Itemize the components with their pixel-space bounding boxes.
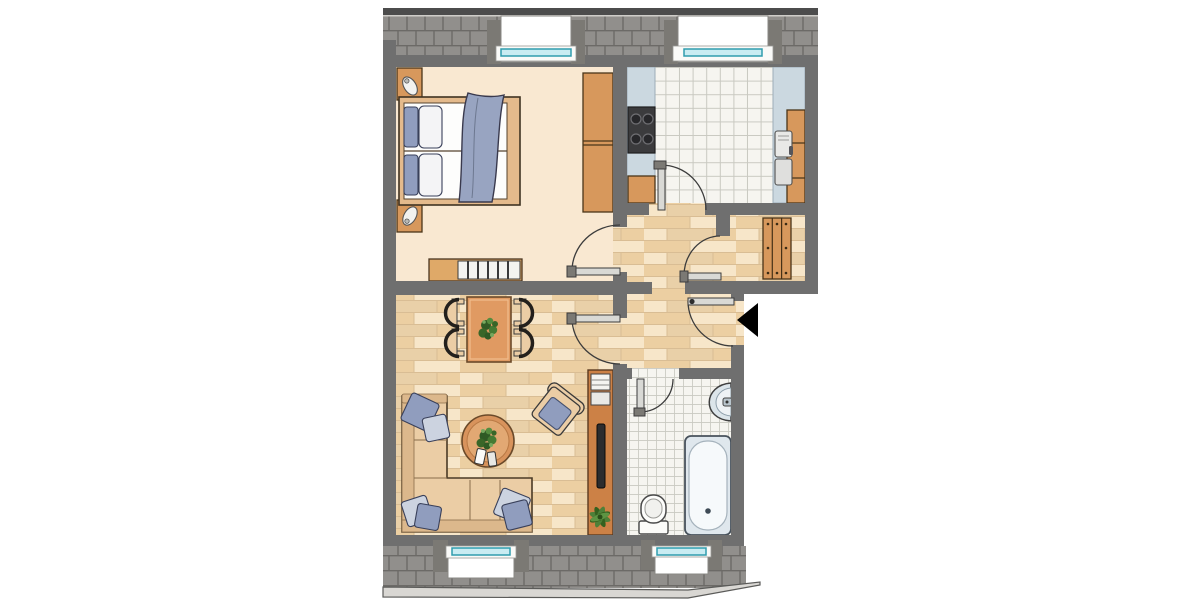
floor-plan	[0, 0, 1200, 600]
dresser-radiator	[429, 259, 522, 281]
window-glass	[684, 49, 762, 56]
sofa-pillow	[414, 503, 442, 531]
pillow	[419, 154, 442, 196]
stove	[628, 107, 655, 153]
pillow	[404, 107, 418, 147]
wall-east-upper	[805, 55, 818, 293]
media-box	[591, 374, 610, 390]
floor-plan-canvas	[0, 0, 1200, 600]
remote-control	[487, 452, 497, 467]
wall-bedroom-living	[396, 281, 627, 295]
window-glass	[657, 548, 706, 555]
wall-west	[383, 40, 396, 546]
roof-ridge-bar	[383, 8, 818, 15]
storage-niche-shelf	[763, 218, 791, 279]
wall-living-bathroom	[613, 364, 627, 546]
media-box	[591, 392, 610, 405]
pillow	[419, 106, 442, 148]
pillow	[404, 155, 418, 195]
wall-kitchen-hall-right	[705, 203, 818, 215]
wall-bathroom-top	[679, 368, 744, 379]
bedroom-dormer-window	[487, 16, 585, 64]
wall-kitchen-hall-left	[613, 203, 649, 215]
coffee-table-group	[462, 415, 514, 467]
toilet	[639, 495, 668, 534]
wardrobe	[583, 73, 613, 212]
wall-niche-bottom	[685, 281, 818, 294]
tv-sideboard-group	[588, 370, 613, 535]
tv	[597, 424, 605, 488]
kitchen-dormer-window	[664, 16, 782, 64]
wall-niche-stub	[716, 215, 730, 236]
sofa-pillow	[422, 414, 450, 442]
kitchen-base-cabinet	[628, 176, 655, 203]
wall-bedroom-kitchen	[613, 55, 627, 227]
window-glass	[452, 548, 510, 555]
window-glass	[501, 49, 571, 56]
double-bed	[399, 93, 520, 205]
tub-drain	[705, 508, 711, 514]
faucet	[789, 146, 793, 155]
door-knob	[689, 299, 694, 304]
bathtub	[685, 436, 731, 535]
sofa-pillow	[501, 499, 533, 531]
